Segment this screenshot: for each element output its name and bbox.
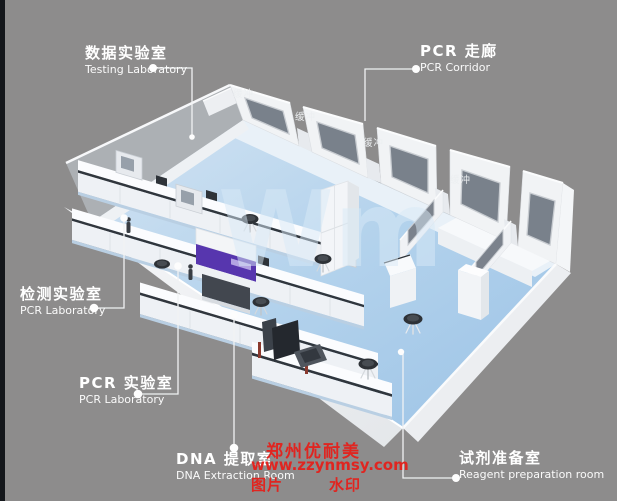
callout-line-corridor [365, 69, 416, 121]
buffer-room-label-3: 缓冲 [363, 135, 384, 149]
floor-watermark-text: Wm [218, 169, 443, 291]
label-en: Reagent preparation room [459, 469, 604, 481]
storage-pillar [458, 264, 489, 320]
buffer-room-label-4: 缓冲 [450, 172, 471, 186]
label-pcr-corridor: PCR 走廊 PCR Corridor [420, 43, 498, 74]
watermark-label-left: 图片 [251, 474, 283, 495]
lab-stool [154, 259, 170, 268]
label-reagent-preparation-room: 试剂准备室 Reagent preparation room [459, 450, 604, 481]
buffer-room-label-1: 缓冲 [233, 86, 254, 100]
label-pcr-laboratory: PCR 实验室 PCR Laboratory [79, 375, 173, 406]
label-en: Testing Laboratory [85, 64, 187, 76]
label-zh: 试剂准备室 [459, 450, 604, 467]
label-zh: PCR 走廊 [420, 43, 498, 60]
window [527, 193, 555, 245]
label-zh: 数据实验室 [85, 45, 187, 62]
label-en: PCR Corridor [420, 62, 498, 74]
human-figure [188, 264, 193, 280]
label-en: PCR Laboratory [20, 305, 105, 317]
label-en: PCR Laboratory [79, 394, 173, 406]
watermark-label-right: 水印 [329, 474, 361, 495]
label-detection-laboratory: 检测实验室 PCR Laboratory [20, 286, 105, 317]
screenshot-root: Wm 缓冲 缓冲 缓冲 缓冲 数据实验室 Testing Laboratory … [0, 0, 617, 501]
buffer-room-label-2: 缓冲 [295, 109, 316, 123]
watermark-website: www.zzynmsy.com [251, 456, 409, 474]
label-testing-laboratory: 数据实验室 Testing Laboratory [85, 45, 187, 76]
label-zh: PCR 实验室 [79, 375, 173, 392]
label-zh: 检测实验室 [20, 286, 105, 303]
gas-post [258, 342, 261, 358]
